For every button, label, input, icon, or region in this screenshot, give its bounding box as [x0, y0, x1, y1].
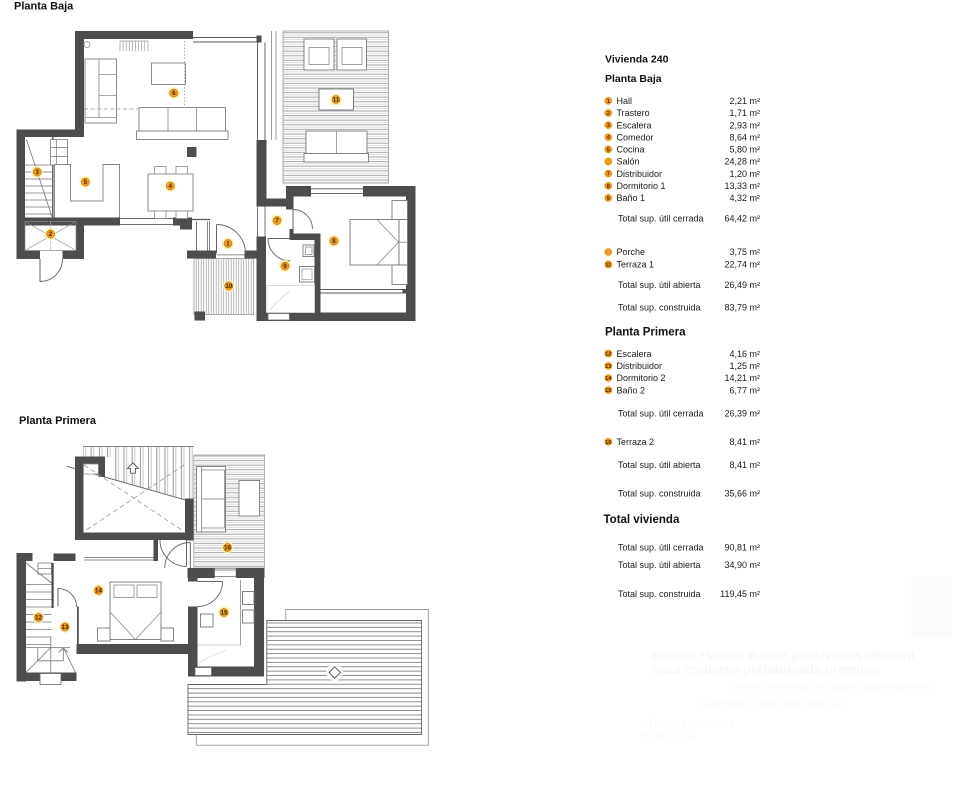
svg-text:34,90 m²: 34,90 m² — [724, 560, 760, 570]
svg-text:64,42 m²: 64,42 m² — [724, 213, 760, 223]
svg-text:83,79 m²: 83,79 m² — [724, 302, 760, 312]
svg-text:Cocina: Cocina — [617, 145, 645, 155]
svg-text:Dormitorio 2: Dormitorio 2 — [617, 373, 666, 383]
svg-text:Trastero: Trastero — [617, 108, 650, 118]
svg-text:3: 3 — [607, 123, 610, 129]
svg-text:2: 2 — [49, 231, 53, 238]
svg-text:11: 11 — [605, 262, 611, 268]
svg-text:Total sup. útil abierta: Total sup. útil abierta — [618, 280, 701, 290]
svg-text:Distribuidor: Distribuidor — [617, 361, 663, 371]
svg-text:13: 13 — [62, 624, 69, 631]
svg-text:7: 7 — [607, 172, 610, 178]
svg-text:Baño 1: Baño 1 — [617, 193, 646, 203]
svg-text:Vivienda 240: Vivienda 240 — [605, 54, 669, 66]
svg-text:16: 16 — [605, 440, 611, 446]
svg-text:Total sup. útil cerrada: Total sup. útil cerrada — [618, 213, 704, 223]
svg-text:13,33 m²: 13,33 m² — [724, 181, 760, 191]
svg-text:Porche: Porche — [617, 247, 646, 257]
svg-text:14: 14 — [95, 588, 102, 595]
svg-text:12: 12 — [605, 352, 611, 358]
svg-text:4,32 m²: 4,32 m² — [729, 193, 760, 203]
svg-text:8,64 m²: 8,64 m² — [729, 132, 760, 142]
svg-text:Total sup. construida: Total sup. construida — [618, 302, 701, 312]
svg-text:Salón: Salón — [617, 157, 640, 167]
svg-text:15: 15 — [605, 388, 611, 394]
svg-text:22,74 m²: 22,74 m² — [724, 260, 760, 270]
svg-text:ref plano arquitectura: ref plano arquitectura — [640, 718, 735, 729]
svg-text:2,93 m²: 2,93 m² — [729, 120, 760, 130]
svg-text:4: 4 — [169, 183, 173, 190]
svg-text:Hall: Hall — [617, 96, 633, 106]
svg-text:Comedor: Comedor — [617, 132, 654, 142]
svg-text:1,20 m²: 1,20 m² — [729, 169, 760, 179]
svg-text:Planta Primera: Planta Primera — [605, 326, 686, 338]
svg-text:Distribuidor: Distribuidor — [617, 169, 663, 179]
svg-text:Baño 2: Baño 2 — [617, 385, 646, 395]
svg-text:26,39 m²: 26,39 m² — [724, 408, 760, 418]
svg-text:Europa Häuser Bauen passivhaus: Europa Häuser Bauen passivhaus effizient — [652, 648, 916, 663]
svg-text:Total vivienda: Total vivienda — [604, 514, 680, 526]
svg-text:16: 16 — [224, 545, 231, 552]
svg-text:12: 12 — [35, 615, 42, 622]
svg-text:Planta Baja: Planta Baja — [14, 1, 74, 13]
svg-text:superficie construida total m2: superficie construida total m2 — [700, 698, 843, 710]
svg-text:8: 8 — [332, 238, 336, 245]
svg-text:Planta Baja: Planta Baja — [605, 73, 662, 85]
svg-text:1: 1 — [226, 241, 230, 248]
svg-text:8: 8 — [607, 184, 610, 190]
svg-text:2: 2 — [607, 111, 610, 117]
svg-text:14,21 m²: 14,21 m² — [724, 373, 760, 383]
svg-text:modelo vivienda 240 plano plan: modelo vivienda 240 plano planta general — [730, 681, 934, 693]
svg-text:Total sup. construida: Total sup. construida — [618, 589, 701, 599]
svg-text:Total sup. útil cerrada: Total sup. útil cerrada — [618, 408, 704, 418]
svg-text:Terraza 2: Terraza 2 — [617, 437, 655, 447]
svg-text:1: 1 — [607, 99, 610, 105]
svg-text:10: 10 — [225, 283, 232, 290]
svg-text:Total sup. construida: Total sup. construida — [618, 488, 701, 498]
svg-text:9: 9 — [607, 196, 610, 202]
svg-text:4,16 m²: 4,16 m² — [729, 349, 760, 359]
svg-text:119,45 m²: 119,45 m² — [720, 589, 760, 599]
svg-text:2,21 m²: 2,21 m² — [729, 96, 760, 106]
svg-text:90,81 m²: 90,81 m² — [724, 543, 760, 553]
svg-text:3: 3 — [35, 169, 39, 176]
svg-text:11: 11 — [333, 97, 340, 104]
svg-text:3,75 m²: 3,75 m² — [729, 247, 760, 257]
svg-text:26,49 m²: 26,49 m² — [724, 280, 760, 290]
svg-text:5: 5 — [607, 147, 610, 153]
svg-text:Total sup. útil abierta: Total sup. útil abierta — [618, 560, 701, 570]
svg-text:14: 14 — [605, 376, 612, 382]
svg-text:15: 15 — [221, 610, 228, 617]
svg-text:1,25 m²: 1,25 m² — [729, 361, 760, 371]
svg-text:6: 6 — [172, 90, 176, 97]
svg-text:1,71 m²: 1,71 m² — [729, 108, 760, 118]
svg-text:casa moderna prefabricada prem: casa moderna prefabricada premium — [652, 662, 880, 677]
svg-text:Total sup. útil abierta: Total sup. útil abierta — [618, 460, 701, 470]
svg-text:8,41 m²: 8,41 m² — [729, 460, 760, 470]
svg-text:Planta Primera: Planta Primera — [19, 415, 97, 427]
svg-text:Terraza 1: Terraza 1 — [617, 260, 655, 270]
svg-text:Escalera: Escalera — [617, 120, 652, 130]
svg-text:24,28 m²: 24,28 m² — [724, 157, 760, 167]
svg-text:5: 5 — [84, 179, 88, 186]
svg-text:9: 9 — [283, 263, 287, 270]
svg-text:Escalera: Escalera — [617, 349, 652, 359]
svg-text:7: 7 — [275, 218, 279, 225]
svg-text:5,80 m²: 5,80 m² — [729, 145, 760, 155]
svg-text:Total sup. útil cerrada: Total sup. útil cerrada — [618, 543, 704, 553]
svg-text:escala 1:100: escala 1:100 — [640, 730, 697, 741]
svg-text:8,41 m²: 8,41 m² — [729, 437, 760, 447]
svg-text:Dormitorio 1: Dormitorio 1 — [617, 181, 666, 191]
svg-text:13: 13 — [605, 364, 611, 370]
svg-text:35,66 m²: 35,66 m² — [724, 488, 760, 498]
svg-text:6,77 m²: 6,77 m² — [729, 385, 760, 395]
